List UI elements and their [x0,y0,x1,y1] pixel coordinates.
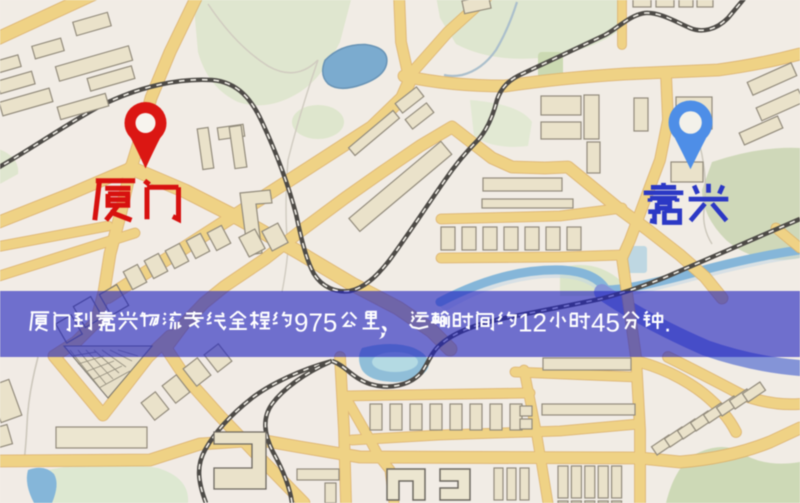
svg-text:45: 45 [591,308,620,338]
svg-text:12: 12 [518,308,547,338]
svg-text:975: 975 [294,308,337,338]
svg-text:.: . [664,308,671,338]
